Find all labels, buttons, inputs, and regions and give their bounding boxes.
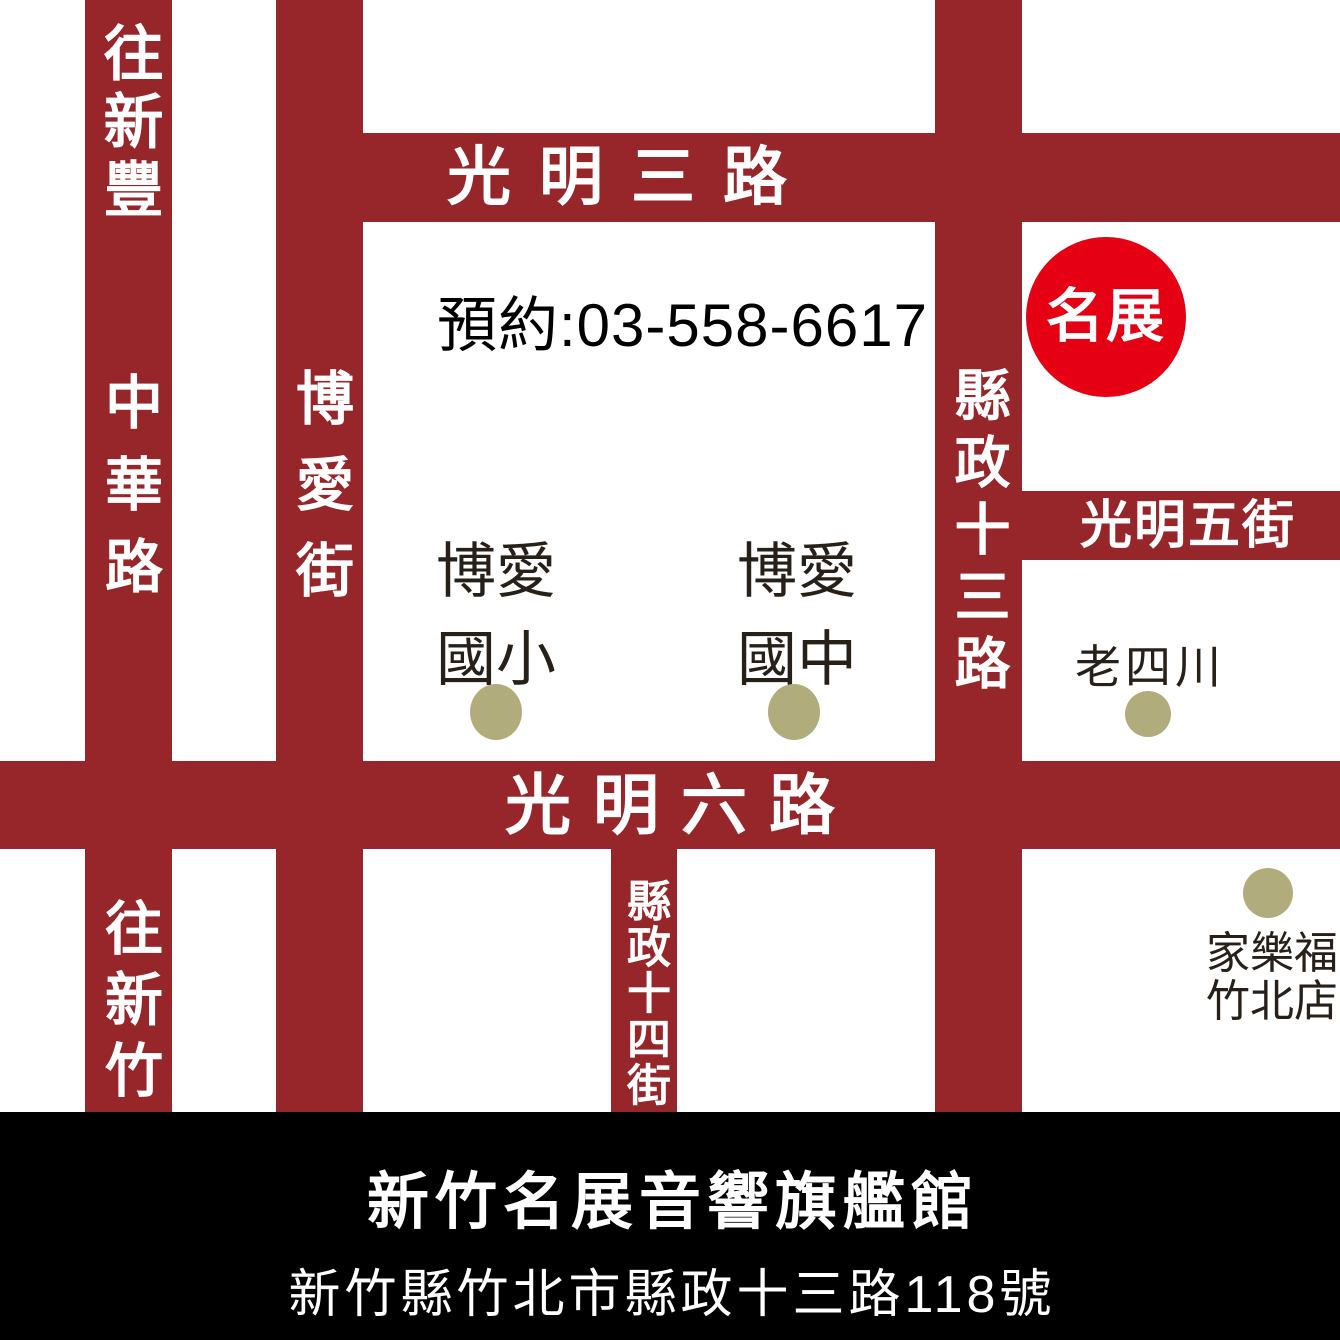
- road-label-boai-street: 博愛街: [290, 368, 348, 626]
- landmark-carrefour-line2: 竹北店: [1206, 978, 1338, 1026]
- landmark-carrefour: 家樂福 竹北店: [1206, 930, 1338, 1026]
- direction-label-to-xinfeng: 往新豐: [98, 22, 158, 226]
- direction-label-to-xinzhu: 往新竹: [99, 898, 157, 1111]
- landmark-lao-si-chuan: 老四川: [1075, 631, 1225, 697]
- landmark-boai-junior-high: 博愛 國中: [737, 528, 857, 704]
- footer-banner: 新竹名展音響旗艦館 新竹縣竹北市縣政十三路118號: [0, 1112, 1340, 1340]
- landmark-boai-elementary-line1: 博愛: [436, 528, 556, 616]
- landmark-boai-junior-high-line1: 博愛: [737, 528, 857, 616]
- store-marker-label: 名展: [1046, 288, 1166, 346]
- store-address: 新竹縣竹北市縣政十三路118號: [285, 1269, 1056, 1321]
- location-map: 往新豐 中華路 往新竹 博愛街 縣政十三路 縣政十四街 光明三路 光明六路 光明…: [0, 0, 1340, 1340]
- road-label-xianzheng-14: 縣政十四街: [622, 878, 666, 1108]
- landmark-dot-lao-si-chuan: [1125, 691, 1171, 737]
- store-name: 新竹名展音響旗艦館: [361, 1172, 979, 1234]
- landmark-dot-boai-junior-high: [768, 684, 820, 740]
- road-label-guangming-5: 光明五街: [1080, 500, 1296, 552]
- road-label-guangming-6: 光明六路: [483, 772, 857, 838]
- landmark-carrefour-line1: 家樂福: [1206, 930, 1338, 978]
- landmark-dot-boai-elementary: [470, 684, 522, 740]
- landmark-dot-carrefour: [1243, 868, 1293, 918]
- reservation-phone: 預約:03-558-6617: [437, 296, 928, 356]
- road-label-zhonghua: 中華路: [99, 372, 157, 618]
- store-marker-circle: 名展: [1026, 237, 1186, 397]
- road-label-xianzheng-13: 縣政十三路: [950, 366, 1006, 701]
- road-label-guangming-3: 光明三路: [419, 145, 815, 209]
- landmark-boai-elementary: 博愛 國小: [436, 528, 556, 704]
